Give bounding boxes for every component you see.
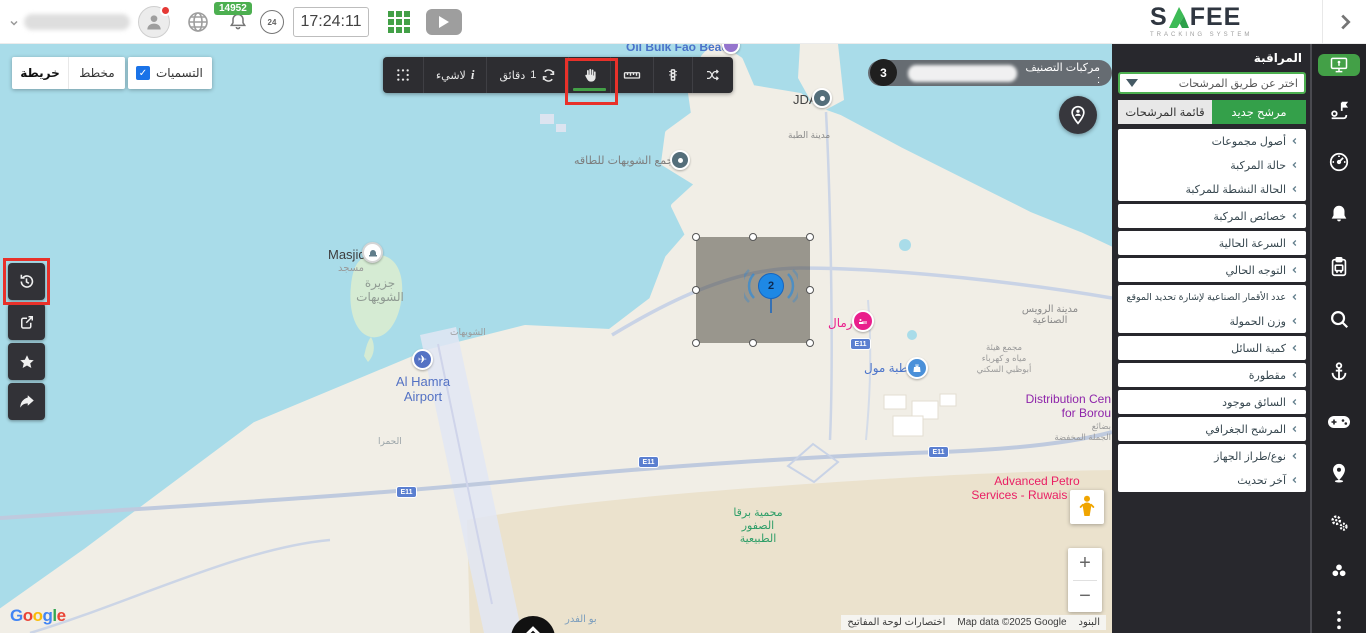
share-arrow-icon: [18, 393, 36, 411]
rail-item-remote-control[interactable]: [1318, 409, 1360, 435]
bell-icon: [1328, 203, 1350, 225]
notification-dot: [160, 5, 171, 16]
dots-grid-icon: [395, 67, 411, 83]
map-type-control: خريطة مخطط: [12, 57, 125, 89]
panel-title: المراقبة: [1112, 44, 1312, 70]
accordion-item-load-weight[interactable]: وزن الحمولة: [1118, 309, 1306, 333]
monitor-pin-icon: [1328, 55, 1350, 75]
map-toolbar: لاشيء i دقائق 1: [383, 57, 733, 93]
ellipsis-vertical-icon: [1335, 609, 1343, 631]
accordion-item-vehicle-properties[interactable]: خصائص المركبة: [1118, 204, 1306, 228]
pegman-control[interactable]: [1070, 490, 1104, 524]
road-shield-e11: E11: [396, 486, 417, 498]
filter-tabs: مرشح جديد قائمة المرشحات: [1118, 100, 1306, 124]
avatar[interactable]: [138, 6, 170, 38]
classification-pill: مركبات التصنيف : 3: [868, 60, 1112, 86]
pan-tool-button[interactable]: [569, 57, 611, 93]
resize-handle[interactable]: [806, 339, 814, 347]
accordion-item-current-heading[interactable]: التوجه الحالي: [1118, 258, 1306, 282]
rail-item-more[interactable]: [1318, 607, 1360, 633]
measure-tool-button[interactable]: [611, 57, 654, 93]
traffic-layer-button[interactable]: [654, 57, 693, 93]
tab-filter-list[interactable]: قائمة المرشحات: [1118, 100, 1212, 124]
tab-new-filter[interactable]: مرشح جديد: [1212, 100, 1306, 124]
favorites-button[interactable]: [8, 343, 45, 380]
notification-count-badge: 14952: [214, 2, 252, 15]
info-icon: i: [471, 67, 475, 83]
map-attribution: اختصارات لوحة المفاتيح Map data ©2025 Go…: [841, 615, 1106, 630]
open-external-button[interactable]: [8, 303, 45, 340]
accordion-item-groups[interactable]: أصول مجموعات: [1118, 129, 1306, 153]
labels-checkbox[interactable]: ✓: [136, 66, 150, 80]
masjid-marker[interactable]: [362, 242, 383, 263]
search-icon: [1328, 308, 1350, 330]
hand-icon: [581, 67, 598, 84]
rail-item-search[interactable]: [1318, 306, 1360, 332]
topbar: 14952 24 17:24:11 S FEE TRACKING SYSTEM: [0, 0, 1366, 44]
video-play-button[interactable]: [426, 9, 462, 35]
pegman-icon: [1078, 495, 1096, 519]
clipboard-car-icon: [1328, 256, 1350, 278]
filter-select-placeholder: اختر عن طريق المرشحات: [1179, 77, 1298, 90]
rail-item-monitoring[interactable]: [1318, 54, 1360, 76]
rail-item-settings[interactable]: [1318, 510, 1360, 536]
anchor-icon: [1328, 361, 1350, 383]
location-pin-icon: [1328, 462, 1350, 484]
zoom-out-button[interactable]: −: [1068, 581, 1102, 613]
cluster-toggle-button[interactable]: [383, 57, 424, 93]
accordion-item-device-type[interactable]: نوع/طراز الجهاز: [1118, 444, 1306, 468]
chevron-up-icon: [522, 624, 544, 633]
accordion-item-trailer[interactable]: مقطورة: [1118, 363, 1306, 387]
topbar-divider: [1322, 0, 1323, 44]
collapse-panel-chevron[interactable]: [1334, 11, 1356, 38]
globe-icon[interactable]: [186, 10, 210, 39]
speedometer-icon: [1328, 151, 1350, 173]
filters-sidebar: المراقبة اختر عن طريق المرشحات مرشح جديد…: [1112, 44, 1312, 633]
person-pin-icon: [1068, 105, 1088, 125]
rail-item-vehicle-reports[interactable]: [1318, 254, 1360, 280]
resize-handle[interactable]: [806, 233, 814, 241]
refresh-interval-button[interactable]: دقائق 1: [487, 57, 569, 93]
dropdown-triangle-icon: [1126, 79, 1138, 87]
bell-icon[interactable]: 14952: [228, 12, 248, 37]
resize-handle[interactable]: [749, 233, 757, 241]
locate-person-button[interactable]: [1059, 96, 1097, 134]
labels-toggle-control[interactable]: ✓ التسميات: [128, 57, 212, 89]
jda-marker[interactable]: [812, 88, 832, 108]
labels-checkbox-label: التسميات: [156, 66, 203, 80]
energy-complex-marker[interactable]: [670, 150, 690, 170]
rimal-marker[interactable]: [852, 310, 874, 332]
vehicle-cluster-marker[interactable]: 2: [744, 264, 798, 322]
resize-handle[interactable]: [692, 339, 700, 347]
resize-handle[interactable]: [806, 286, 814, 294]
rail-item-dashboard[interactable]: [1318, 149, 1360, 175]
shuffle-icon: [705, 67, 721, 83]
gears-icon: [1327, 512, 1351, 534]
road-shield-e11: E11: [928, 446, 949, 458]
map-canvas[interactable]: Oil Bulk Fao Beach JDA مدينة الطبة مجمع …: [0, 44, 1112, 633]
classification-count-badge: 3: [870, 59, 897, 86]
resize-handle[interactable]: [692, 286, 700, 294]
terms-link[interactable]: البنود: [1073, 615, 1106, 630]
traffic-light-icon: [666, 67, 680, 83]
map-type-map[interactable]: خريطة: [12, 57, 68, 89]
share-button[interactable]: [8, 383, 45, 420]
star-icon: [18, 353, 36, 371]
rail-item-alerts[interactable]: [1318, 201, 1360, 227]
chevron-down-icon[interactable]: [8, 16, 20, 34]
rail-item-locations[interactable]: [1318, 459, 1360, 485]
classification-pill-label: مركبات التصنيف :: [1025, 61, 1100, 86]
support-24h-icon[interactable]: 24: [260, 10, 284, 34]
rail-item-anchor[interactable]: [1318, 358, 1360, 384]
accordion-item-gps-satellites[interactable]: عدد الأقمار الصناعية لإشارة تحديد الموقع: [1118, 285, 1306, 309]
filter-accordion: أصول مجموعات حالة المركبة الحالة النشطة …: [1118, 129, 1306, 492]
external-link-icon: [18, 313, 36, 331]
map-data-text: Map data ©2025 Google: [951, 615, 1072, 630]
logo-arrow-icon: [1168, 6, 1190, 30]
navigation-rail: [1312, 44, 1366, 633]
accordion-item-geo-filter[interactable]: المرشح الجغرافي: [1118, 417, 1306, 441]
gamepad-icon: [1327, 413, 1351, 431]
accordion-item-fluid-amount[interactable]: كمية السائل: [1118, 336, 1306, 360]
resize-handle[interactable]: [692, 233, 700, 241]
ruler-icon: [623, 66, 641, 84]
info-mode-button[interactable]: لاشيء i: [424, 57, 487, 93]
username-blurred: [24, 14, 130, 30]
accordion-item-vehicle-status[interactable]: حالة المركبة: [1118, 153, 1306, 177]
history-button[interactable]: [8, 263, 45, 300]
accordion-item-last-update[interactable]: آخر تحديث: [1118, 468, 1306, 492]
history-icon: [17, 272, 36, 291]
road-shield-e11: E11: [638, 456, 659, 468]
accordion-item-driver-present[interactable]: السائق موجود: [1118, 390, 1306, 414]
classification-name-blurred: [908, 65, 1017, 82]
filter-select[interactable]: اختر عن طريق المرشحات: [1118, 72, 1306, 94]
map-terrain: [0, 44, 1112, 633]
google-logo[interactable]: Google: [10, 606, 66, 626]
refresh-icon: [541, 68, 556, 83]
zoom-control: + −: [1068, 548, 1102, 612]
active-tool-indicator: [573, 88, 606, 91]
keyboard-shortcuts-link[interactable]: اختصارات لوحة المفاتيح: [841, 615, 951, 630]
clock-time: 17:24:11: [293, 7, 369, 37]
airport-marker[interactable]: ✈: [412, 349, 433, 370]
apps-grid-icon[interactable]: [388, 11, 410, 33]
accordion-item-current-speed[interactable]: السرعة الحالية: [1118, 231, 1306, 255]
rail-item-groups[interactable]: [1318, 558, 1360, 584]
map-type-satellite[interactable]: مخطط: [69, 57, 125, 89]
resize-handle[interactable]: [749, 339, 757, 347]
zoom-in-button[interactable]: +: [1068, 548, 1102, 580]
rail-item-routes[interactable]: [1318, 96, 1360, 122]
route-flag-icon: [1328, 99, 1350, 121]
cluster-count: 2: [758, 273, 784, 299]
cluster-icon: [1328, 560, 1350, 582]
road-shield-e11: E11: [850, 338, 871, 350]
route-tool-button[interactable]: [693, 57, 733, 93]
mall-marker[interactable]: [906, 357, 928, 379]
safee-logo: S FEE TRACKING SYSTEM: [1150, 5, 1252, 38]
accordion-item-active-state[interactable]: الحالة النشطة للمركبة: [1118, 177, 1306, 201]
